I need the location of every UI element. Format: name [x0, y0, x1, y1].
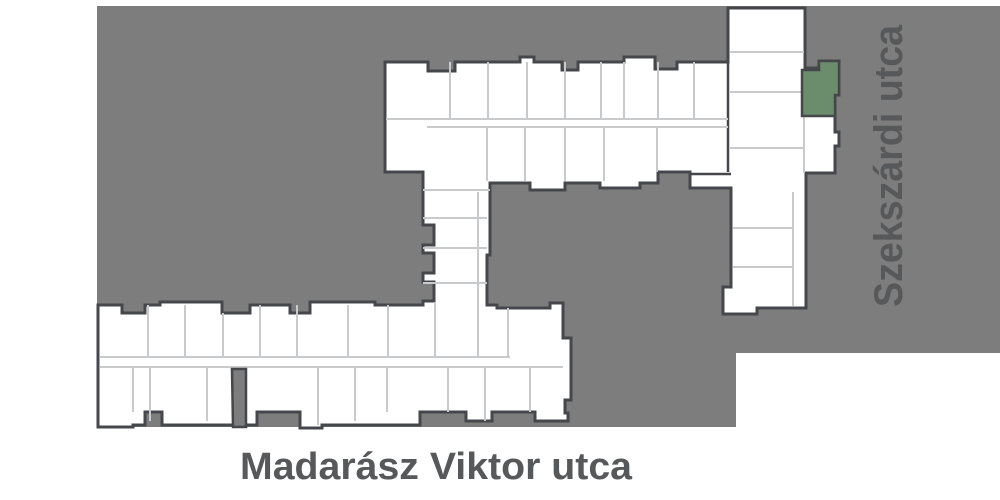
floor-plan-canvas: Szekszárdi utca Madarász Viktor utca: [0, 0, 1000, 500]
highlighted-unit[interactable]: [802, 61, 839, 116]
site-plan-svg: Szekszárdi utca Madarász Viktor utca: [0, 0, 1000, 500]
street-label-madarasz: Madarász Viktor utca: [240, 446, 633, 488]
street-label-szekszardi: Szekszárdi utca: [867, 24, 911, 307]
passage-cutout: [232, 369, 246, 427]
